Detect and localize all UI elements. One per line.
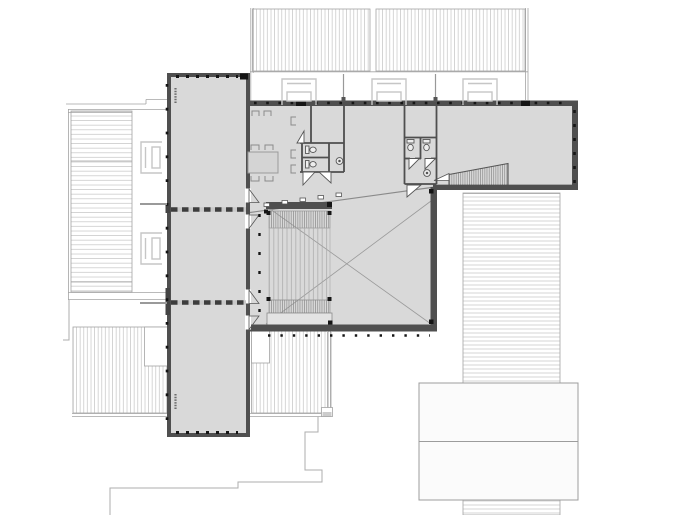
north-roof-hatch <box>376 9 525 71</box>
washbasin-icon <box>424 170 431 177</box>
chair-icon <box>300 198 306 202</box>
hall-south-wall <box>248 325 437 332</box>
bench-icon <box>463 79 497 105</box>
washbasin-icon <box>336 158 343 165</box>
fence-foot-dark <box>323 412 332 416</box>
stair-beam <box>266 202 332 209</box>
stair-flight-upper <box>269 211 330 228</box>
east-wing-east-wall <box>572 101 578 191</box>
chair-icon <box>282 201 288 205</box>
toilet-icon <box>306 161 317 169</box>
chair-icon <box>336 193 342 197</box>
terrace-notch <box>252 327 270 363</box>
west-wing-floor <box>169 75 248 435</box>
bench-icon <box>372 79 406 105</box>
stair-flight-lower <box>269 300 330 313</box>
chair-icon <box>318 196 324 200</box>
toilet-icon <box>306 146 317 154</box>
meeting-table <box>248 152 278 173</box>
terrace-notch <box>145 327 169 366</box>
bench-icon <box>141 142 162 173</box>
bench-icon <box>141 233 162 264</box>
floor-plan-canvas <box>0 0 700 515</box>
west-roof-hatch <box>71 111 132 292</box>
terrace-wall-stubs <box>140 204 167 303</box>
stair-landing <box>267 313 332 325</box>
north-roof-hatch <box>253 9 371 71</box>
east-wing-south-wall <box>433 185 578 191</box>
bench-icon <box>282 79 316 105</box>
hall-east-wall <box>431 187 438 331</box>
stair-run-middle <box>269 228 330 300</box>
fence-posts <box>342 74 438 102</box>
terrace-white-box <box>419 383 578 500</box>
toilet-icon <box>423 140 430 151</box>
toilet-icon <box>407 140 414 151</box>
stair-icon <box>266 202 333 325</box>
chair-icon <box>264 203 270 207</box>
floor-plan-drawing <box>0 0 700 515</box>
